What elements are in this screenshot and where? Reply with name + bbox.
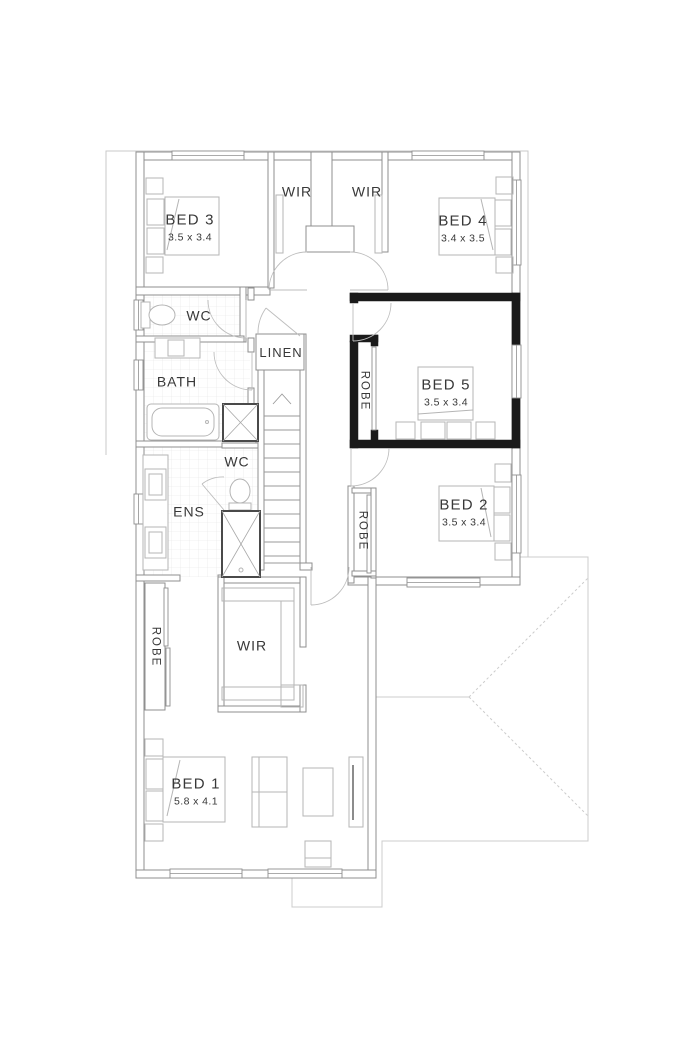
label-wir-top-right: WIR	[352, 184, 382, 199]
label-bed2: BED 2 3.5 x 3.4	[439, 497, 488, 528]
label-bed5: BED 5 3.5 x 3.4	[421, 377, 470, 408]
staircase	[264, 394, 300, 563]
label-linen: LINEN	[259, 346, 302, 360]
label-robe-bed1: ROBE	[149, 627, 162, 668]
label-wir-bed1: WIR	[237, 638, 267, 653]
label-bath: BATH	[157, 374, 197, 389]
label-bed3: BED 3 3.5 x 3.4	[165, 212, 214, 243]
floor-plan-canvas: BED 3 3.5 x 3.4 WIR WIR BED 4 3.4 x 3.5 …	[0, 0, 700, 1045]
label-ens: ENS	[173, 504, 205, 519]
label-robe-bed5: ROBE	[358, 371, 371, 412]
label-wc-upper: WC	[186, 308, 211, 323]
label-wir-top-left: WIR	[282, 184, 312, 199]
label-bed4: BED 4 3.4 x 3.5	[438, 213, 487, 244]
floor-plan-drawing	[0, 0, 700, 1045]
roof-outline	[292, 557, 588, 907]
label-robe-bed2: ROBE	[356, 511, 369, 552]
label-wc-ens: WC	[224, 454, 249, 469]
label-bed1: BED 1 5.8 x 4.1	[171, 776, 220, 807]
